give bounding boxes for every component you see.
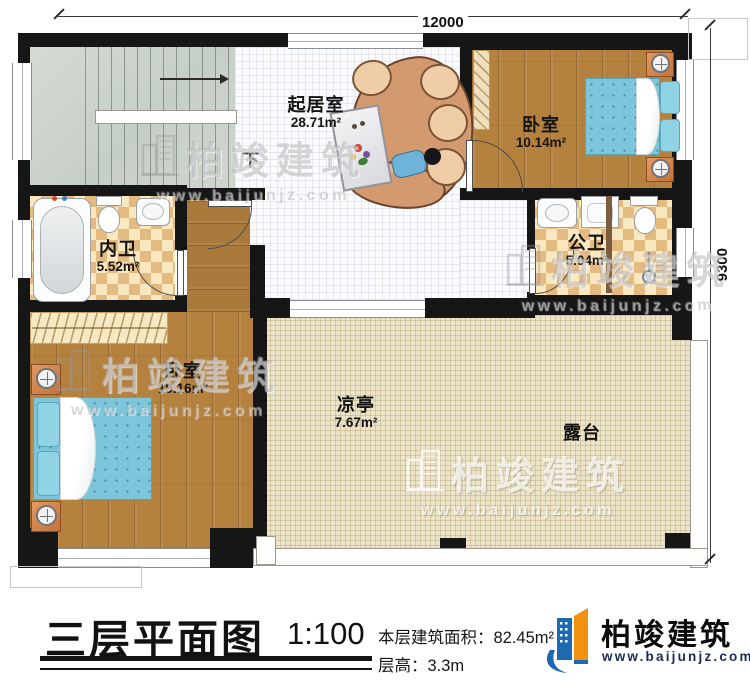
room-name: 露台 xyxy=(563,424,601,444)
floor-plan-sheet: 下 xyxy=(0,0,750,681)
wall xyxy=(527,196,535,250)
room-area: 28.71m² xyxy=(288,116,345,131)
brand-logo-icon xyxy=(538,604,598,676)
brand-name: 柏竣建筑 xyxy=(601,610,733,654)
toilet xyxy=(634,207,656,234)
pillow xyxy=(37,402,60,447)
flower-dot xyxy=(350,154,356,160)
room-label-living: 起居室 28.71m² xyxy=(288,96,345,131)
terrace-railing-bottom xyxy=(253,548,708,566)
room-name: 凉亭 xyxy=(335,396,378,416)
sink-basin xyxy=(142,203,164,220)
toilet xyxy=(98,206,120,233)
wardrobe xyxy=(473,50,490,130)
outer-sill-line xyxy=(10,566,142,588)
wall xyxy=(187,188,265,200)
room-label-bath-public: 公卫 5.04m² xyxy=(566,234,609,269)
table-deco-dot xyxy=(360,121,365,126)
lamp-icon xyxy=(651,54,670,73)
closet-rod xyxy=(32,327,166,329)
room-area: 5.04m² xyxy=(566,254,609,269)
flower-dot xyxy=(354,144,362,152)
room-name: 卧室 xyxy=(516,116,566,136)
pillow xyxy=(37,451,60,496)
drawing-scale: 1:100 xyxy=(287,616,365,652)
door-leaf-bedroom-top xyxy=(466,140,473,192)
pillow xyxy=(660,119,680,152)
room-name: 公卫 xyxy=(566,234,609,254)
corner-guide-line xyxy=(688,18,748,60)
person-head xyxy=(424,148,441,165)
lamp-icon xyxy=(651,159,670,178)
sliding-door xyxy=(290,300,425,318)
bathtub-basin xyxy=(40,206,84,294)
wall xyxy=(175,196,187,250)
room-area: 7.67m² xyxy=(335,416,378,431)
wall xyxy=(253,312,267,548)
door-leaf-bath-inner xyxy=(177,250,184,296)
brand-url: www.baijunjz.com xyxy=(602,649,750,664)
dimension-line-right xyxy=(710,28,711,563)
wall xyxy=(460,33,692,50)
terrace-post xyxy=(256,536,276,565)
room-label-bath-inner: 内卫 5.52m² xyxy=(97,240,140,275)
window xyxy=(12,63,32,160)
window xyxy=(58,548,210,568)
floor-height-label: 层高： xyxy=(378,657,428,675)
stair-direction-line xyxy=(160,78,220,80)
living-room-floor-ext xyxy=(460,200,527,302)
wall xyxy=(18,528,58,568)
faucet-dot xyxy=(62,196,67,201)
stair-handrail xyxy=(95,110,237,124)
toilet-tank xyxy=(96,196,122,206)
room-label-terrace: 露台 xyxy=(563,424,601,444)
window xyxy=(12,220,32,278)
pillow xyxy=(660,81,680,114)
floor-area-label: 本层建筑面积： xyxy=(378,629,494,647)
floor-plan: 下 xyxy=(0,0,750,600)
dimension-tick xyxy=(53,8,64,19)
stair-down-label: 下 xyxy=(242,146,259,171)
toilet-tank xyxy=(630,196,658,206)
door-leaf-bath-public xyxy=(529,248,536,294)
window xyxy=(676,228,694,277)
terrace-floor xyxy=(265,315,690,548)
shower-drain-icon xyxy=(642,270,656,284)
window xyxy=(288,33,423,49)
wall xyxy=(535,295,692,315)
wall xyxy=(527,292,535,315)
door-leaf-bedroom-left xyxy=(208,200,252,207)
lamp-icon xyxy=(36,505,57,526)
terrace-railing-right xyxy=(690,340,708,568)
floor-height-value: 3.3m xyxy=(428,657,465,675)
wall xyxy=(18,185,187,196)
dimension-label-right: 9300 xyxy=(714,245,731,284)
faucet-dot xyxy=(52,196,57,201)
room-area: 19.16m² xyxy=(158,382,208,397)
wall xyxy=(460,192,472,200)
room-label-pavilion: 凉亭 7.67m² xyxy=(335,396,378,431)
room-area: 5.52m² xyxy=(97,260,140,275)
wall xyxy=(210,528,253,568)
floor-area-line: 本层建筑面积：82.45m² xyxy=(378,624,554,648)
stair-direction-arrow-icon xyxy=(220,74,229,84)
wall xyxy=(425,298,535,318)
wall xyxy=(18,33,288,47)
title-block: 三层平面图 1:100 本层建筑面积：82.45m² 层高：3.3m xyxy=(0,600,750,681)
floor-height-line: 层高：3.3m xyxy=(378,652,464,676)
sink-basin xyxy=(545,204,569,222)
dimension-label-top: 12000 xyxy=(418,14,468,31)
room-name: 内卫 xyxy=(97,240,140,260)
table-deco-dot xyxy=(352,124,357,129)
lamp-icon xyxy=(36,368,57,389)
room-name: 起居室 xyxy=(288,96,345,116)
title-underline xyxy=(40,656,372,661)
title-underline-thin xyxy=(40,668,372,670)
room-name: 卧室 xyxy=(158,362,208,382)
room-area: 10.14m² xyxy=(516,136,566,151)
shower-stem xyxy=(648,252,650,270)
dimension-line-top xyxy=(58,16,688,17)
room-label-bedroom-top: 卧室 10.14m² xyxy=(516,116,566,151)
room-label-bedroom-left: 卧室 19.16m² xyxy=(158,362,208,397)
